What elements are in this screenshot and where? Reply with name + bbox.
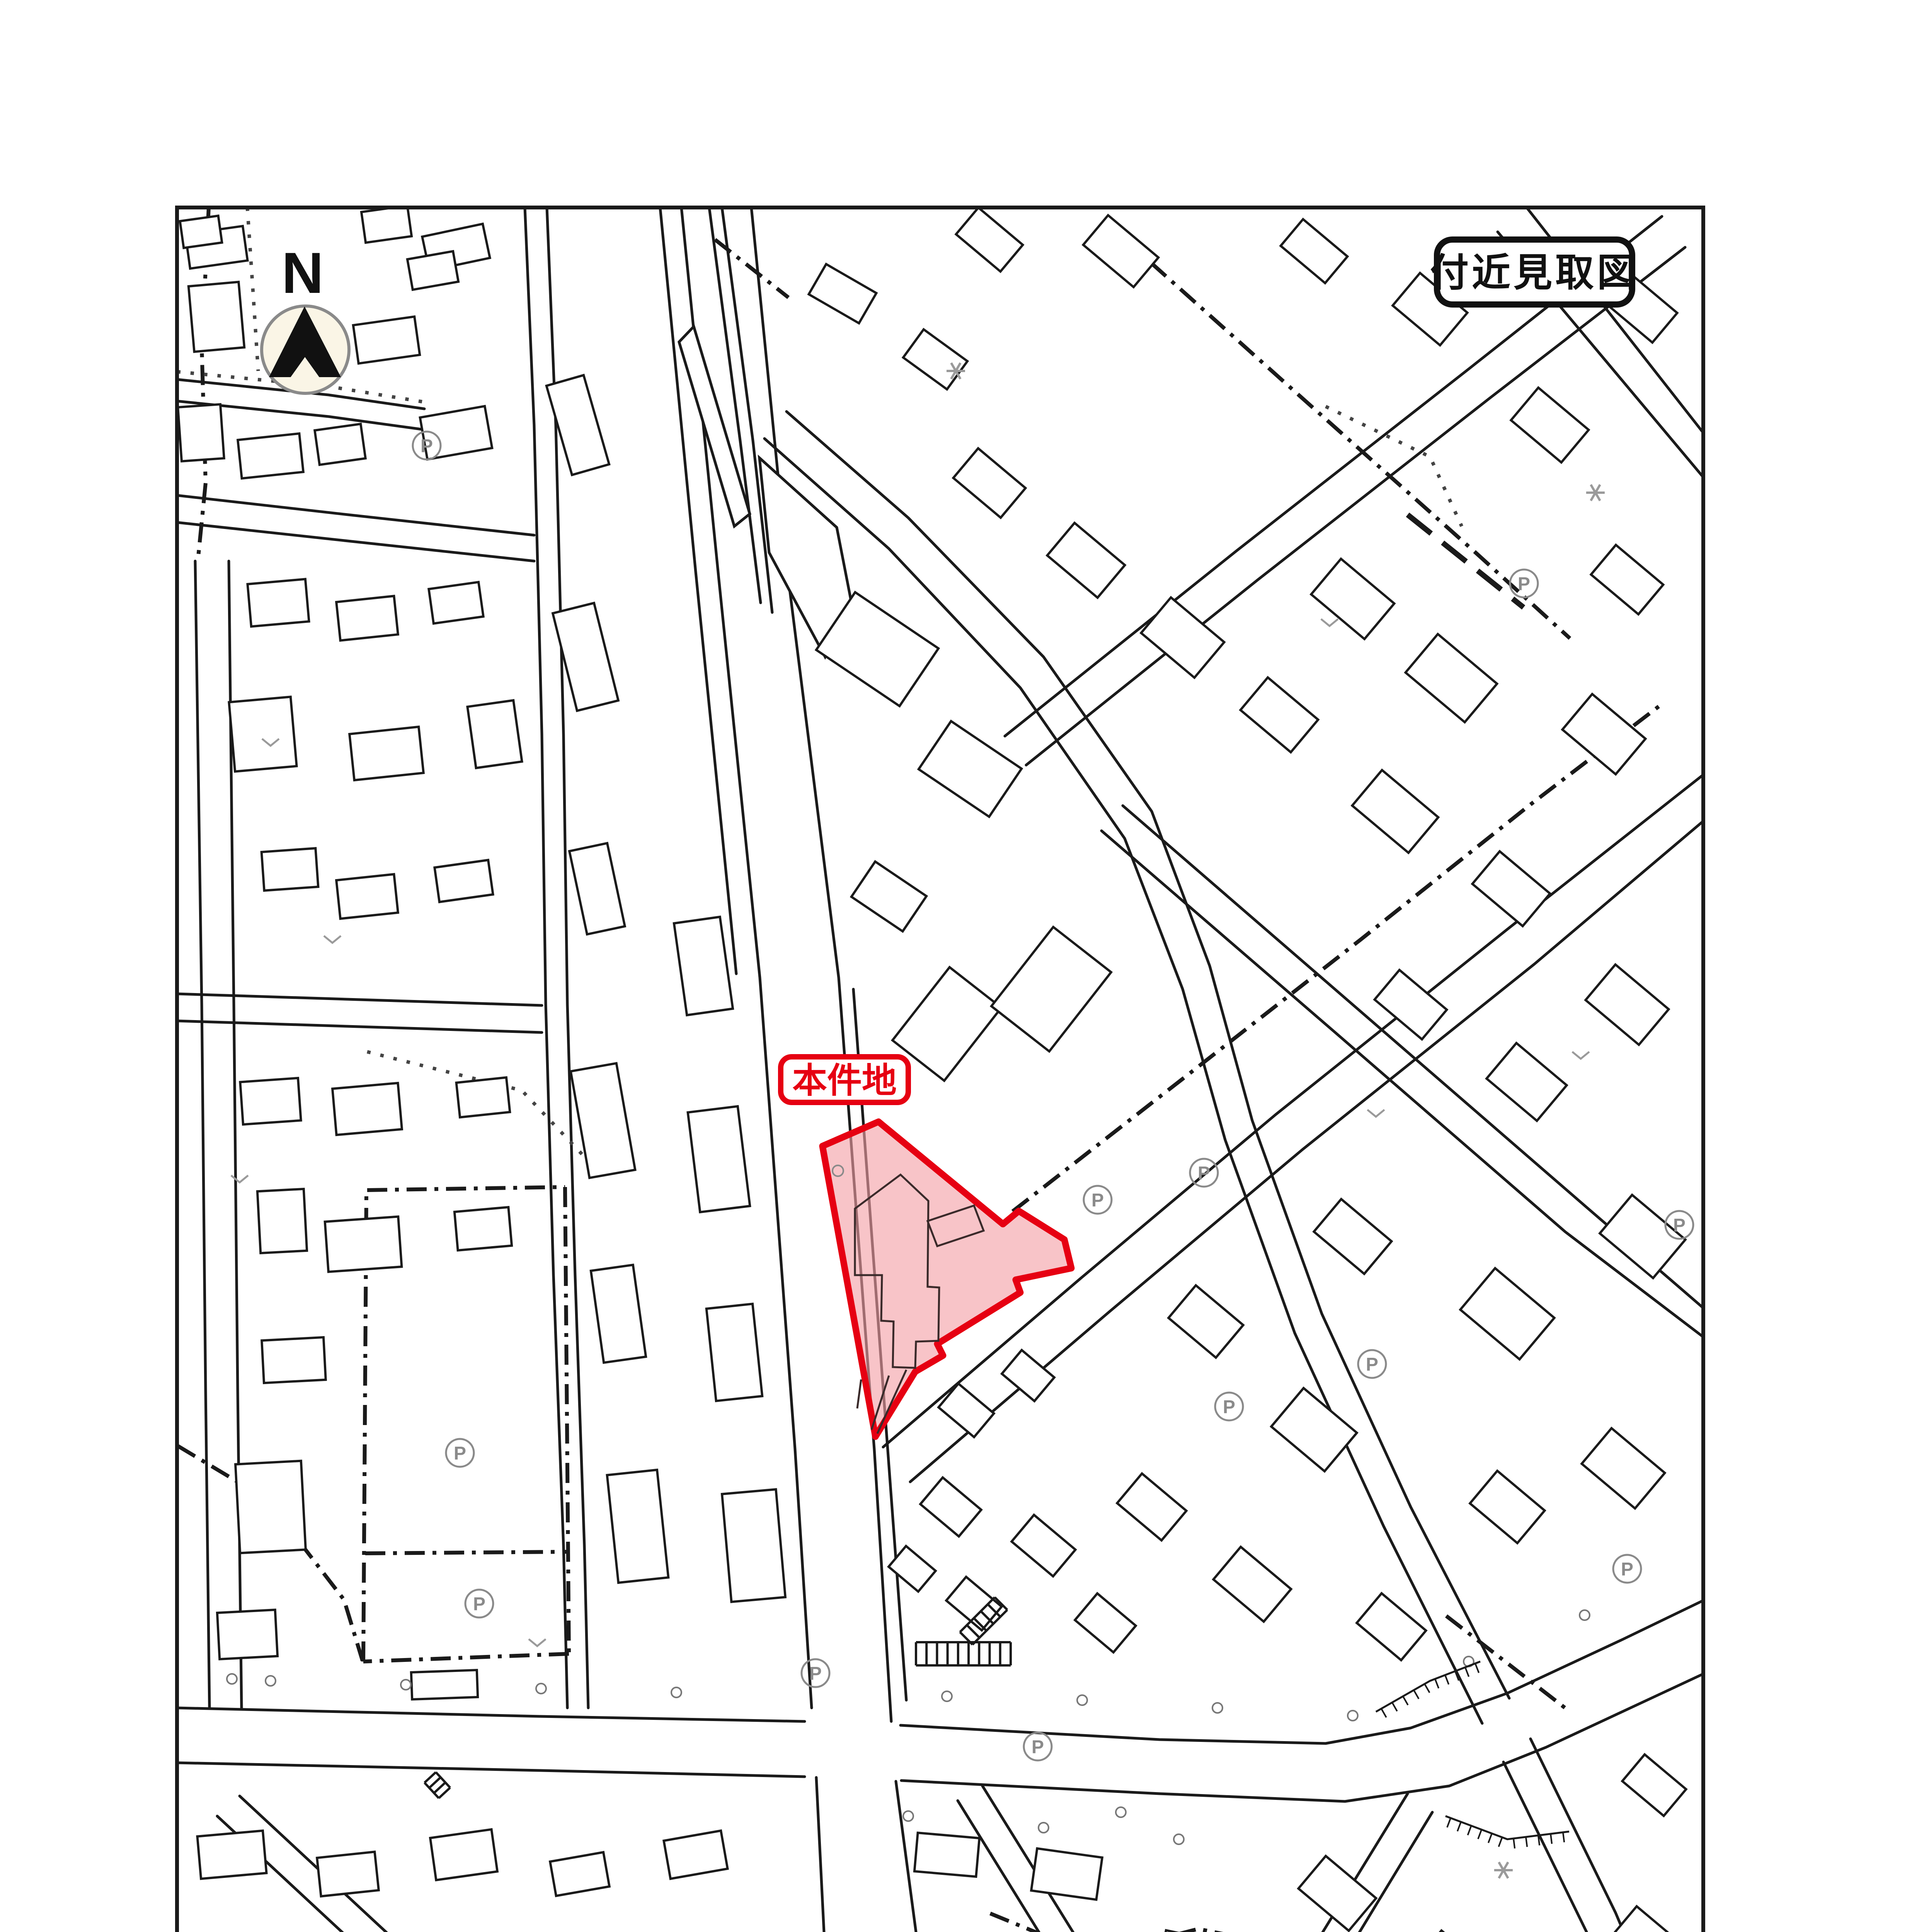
building-outline xyxy=(1281,219,1348,283)
svg-text:P: P xyxy=(809,1663,822,1684)
building-outline xyxy=(1562,694,1645,774)
building-outline xyxy=(353,316,420,363)
building-outline xyxy=(235,1461,306,1553)
road-edge-line xyxy=(177,1763,805,1777)
building-outline xyxy=(1460,1268,1554,1359)
road-edge-line xyxy=(1147,1812,1432,1932)
road-edge-line xyxy=(883,775,1703,1447)
vegetation-check-icon xyxy=(529,1639,546,1646)
asterisk-icon xyxy=(1586,485,1605,501)
roadside-circle-icon xyxy=(1039,1823,1049,1833)
building-outline xyxy=(1168,1285,1243,1357)
building-outline xyxy=(571,1063,635,1178)
parking-icon: P xyxy=(802,1659,829,1687)
building-outline xyxy=(914,1833,979,1877)
building-outline xyxy=(178,404,224,461)
building-outline xyxy=(407,251,458,290)
building-outline xyxy=(456,1077,510,1117)
building-outline xyxy=(688,1106,750,1212)
building-outline xyxy=(1031,1849,1102,1900)
building-outline xyxy=(1473,851,1550,926)
site-label-text: 本件地 xyxy=(792,1061,897,1100)
building-outline xyxy=(953,448,1026,517)
building-outline xyxy=(722,1489,785,1602)
road-edge-line xyxy=(177,1708,805,1721)
svg-text:P: P xyxy=(1223,1397,1235,1417)
svg-text:P: P xyxy=(454,1443,466,1464)
parking-icon: P xyxy=(1613,1555,1641,1583)
building-outline xyxy=(1411,1930,1495,1932)
parking-icon: P xyxy=(1190,1159,1218,1187)
parking-icon: P xyxy=(446,1439,474,1467)
roadside-circle-icon xyxy=(1174,1834,1184,1844)
building-outline xyxy=(1622,1755,1686,1816)
vicinity-map: PPPPPPPPPPPPPP N 付近見取図 本件地 縮尺 1：1500 105… xyxy=(0,0,1917,1932)
building-outline xyxy=(1406,634,1497,722)
roadside-circle-icon xyxy=(227,1674,237,1684)
building-outline xyxy=(262,848,318,891)
building-outline xyxy=(332,1083,402,1135)
building-outline xyxy=(1375,970,1447,1039)
north-indicator: N xyxy=(262,240,349,393)
building-outline xyxy=(1141,597,1224,678)
building-outline xyxy=(991,927,1111,1051)
building-outline xyxy=(550,1852,609,1896)
roadside-circle-icon xyxy=(671,1687,681,1697)
parking-icon: P xyxy=(1215,1393,1243,1420)
building-outline xyxy=(434,860,493,902)
building-outline xyxy=(1002,1350,1054,1401)
building-outline xyxy=(1083,215,1159,287)
svg-text:P: P xyxy=(1673,1215,1685,1236)
svg-text:P: P xyxy=(1032,1737,1044,1757)
building-outline xyxy=(664,1831,727,1879)
building-outline xyxy=(1075,1594,1136,1653)
building-outline xyxy=(247,579,309,627)
building-outline xyxy=(707,1304,762,1401)
vegetation-check-icon xyxy=(1321,619,1338,626)
road-edge-line xyxy=(195,561,209,1708)
steps-icon xyxy=(424,1772,450,1798)
road-edge-line xyxy=(901,1674,1703,1801)
building-outline xyxy=(455,1207,512,1250)
svg-text:P: P xyxy=(421,436,433,456)
building-outline xyxy=(197,1831,267,1879)
svg-text:P: P xyxy=(473,1594,485,1614)
building-outline xyxy=(1299,1856,1376,1931)
road-edge-line xyxy=(901,1600,1703,1743)
map-canvas: PPPPPPPPPPPPPP xyxy=(177,206,1703,1932)
building-outline xyxy=(430,1829,497,1880)
road-edge-line xyxy=(177,994,542,1005)
boundary-bolddash-line xyxy=(1408,515,1524,607)
building-outline xyxy=(903,329,967,389)
roadside-circle-icon xyxy=(1580,1610,1590,1620)
building-outline xyxy=(257,1189,307,1253)
parking-icon: P xyxy=(1084,1186,1112,1214)
roadside-circle-icon xyxy=(266,1676,276,1686)
building-outline xyxy=(1582,1428,1665,1509)
building-outline xyxy=(1241,677,1318,752)
parking-icon: P xyxy=(1024,1733,1052,1760)
building-outline xyxy=(1470,1471,1544,1543)
building-outline xyxy=(317,1852,379,1896)
boundary-dashdot-line xyxy=(715,240,788,298)
map-title: 付近見取図 xyxy=(1430,251,1639,294)
building-outline xyxy=(1585,964,1668,1045)
building-outline xyxy=(315,424,365,465)
building-outline xyxy=(851,862,926,932)
vegetation-check-icon xyxy=(231,1175,248,1182)
site-label: 本件地 xyxy=(781,1057,908,1102)
building-outline xyxy=(1612,1906,1681,1932)
road-edge-line xyxy=(177,1021,542,1032)
boundary-dashdot-line xyxy=(365,1552,567,1553)
north-letter: N xyxy=(282,240,323,305)
building-outline xyxy=(1271,1388,1357,1471)
building-outline xyxy=(1591,545,1663,614)
road-edge-line xyxy=(1026,247,1685,765)
building-outline xyxy=(361,206,412,243)
building-outline xyxy=(240,1078,301,1124)
building-outline xyxy=(1314,1199,1392,1274)
building-outline xyxy=(349,727,424,780)
building-outline xyxy=(411,1670,478,1699)
building-outline xyxy=(262,1337,326,1383)
building-outline xyxy=(591,1265,646,1363)
building-outline xyxy=(217,1610,278,1659)
building-outline xyxy=(1214,1547,1291,1622)
steps-icon xyxy=(916,1642,1011,1665)
vicinity-map-page: PPPPPPPPPPPPPP N 付近見取図 本件地 縮尺 1：1500 105… xyxy=(0,0,1917,1932)
svg-text:P: P xyxy=(1091,1190,1104,1211)
building-outline xyxy=(229,697,296,771)
building-outline xyxy=(607,1470,669,1583)
roadside-circle-icon xyxy=(1348,1711,1358,1721)
boundary-dashdot-line xyxy=(363,1654,569,1662)
building-outline xyxy=(180,216,222,248)
building-outline xyxy=(336,596,398,640)
parking-icon: P xyxy=(1510,570,1538,597)
boundary-dashdot-line xyxy=(990,1913,1314,1932)
building-outline xyxy=(1117,1473,1186,1540)
asterisk-icon xyxy=(1494,1862,1513,1878)
building-outline xyxy=(809,264,877,323)
road-edge-line xyxy=(1531,1739,1703,1932)
parking-icon: P xyxy=(1358,1350,1386,1378)
roadside-circle-icon xyxy=(942,1691,952,1701)
building-outline xyxy=(1047,523,1125,598)
road-edge-line xyxy=(1102,831,1703,1337)
svg-text:P: P xyxy=(1198,1163,1210,1184)
building-outline xyxy=(956,207,1023,271)
roadside-circle-icon xyxy=(1212,1703,1222,1713)
roadside-circle-icon xyxy=(903,1811,913,1821)
boundary-dashdot-line xyxy=(367,1187,565,1190)
title-box: 付近見取図 xyxy=(1430,240,1639,304)
building-outline xyxy=(920,1478,981,1537)
vegetation-check-icon xyxy=(1367,1110,1384,1117)
svg-text:P: P xyxy=(1621,1559,1633,1580)
road-edge-line xyxy=(722,207,772,612)
building-outline xyxy=(1511,388,1589,463)
building-outline xyxy=(238,434,303,478)
building-outline xyxy=(1357,1593,1426,1660)
boundary-dashdot-line xyxy=(1013,704,1662,1211)
building-outline xyxy=(1011,1515,1075,1577)
roadside-circle-icon xyxy=(1077,1695,1087,1705)
road-edge-line xyxy=(816,1777,841,1932)
building-outline xyxy=(189,282,244,352)
svg-text:P: P xyxy=(1366,1354,1378,1375)
site-slash-line xyxy=(857,1379,861,1408)
building-outline xyxy=(674,917,733,1015)
building-outline xyxy=(569,843,625,934)
parking-icon: P xyxy=(465,1590,493,1617)
building-outline xyxy=(1311,559,1394,639)
building-outline xyxy=(336,874,398,918)
building-outline xyxy=(467,700,522,768)
vegetation-check-icon xyxy=(324,936,341,943)
building-outline xyxy=(1486,1043,1566,1121)
vegetation-check-icon xyxy=(1572,1052,1589,1059)
svg-text:P: P xyxy=(1518,574,1530,594)
slope-hatch xyxy=(1445,1816,1569,1849)
building-outline xyxy=(1352,770,1439,853)
roadside-circle-icon xyxy=(401,1680,411,1690)
roadside-circle-icon xyxy=(1116,1807,1126,1817)
building-outline xyxy=(429,582,483,623)
building-outline xyxy=(325,1217,402,1272)
boundary-dotted-line xyxy=(247,207,258,371)
roadside-circle-icon xyxy=(536,1684,546,1694)
